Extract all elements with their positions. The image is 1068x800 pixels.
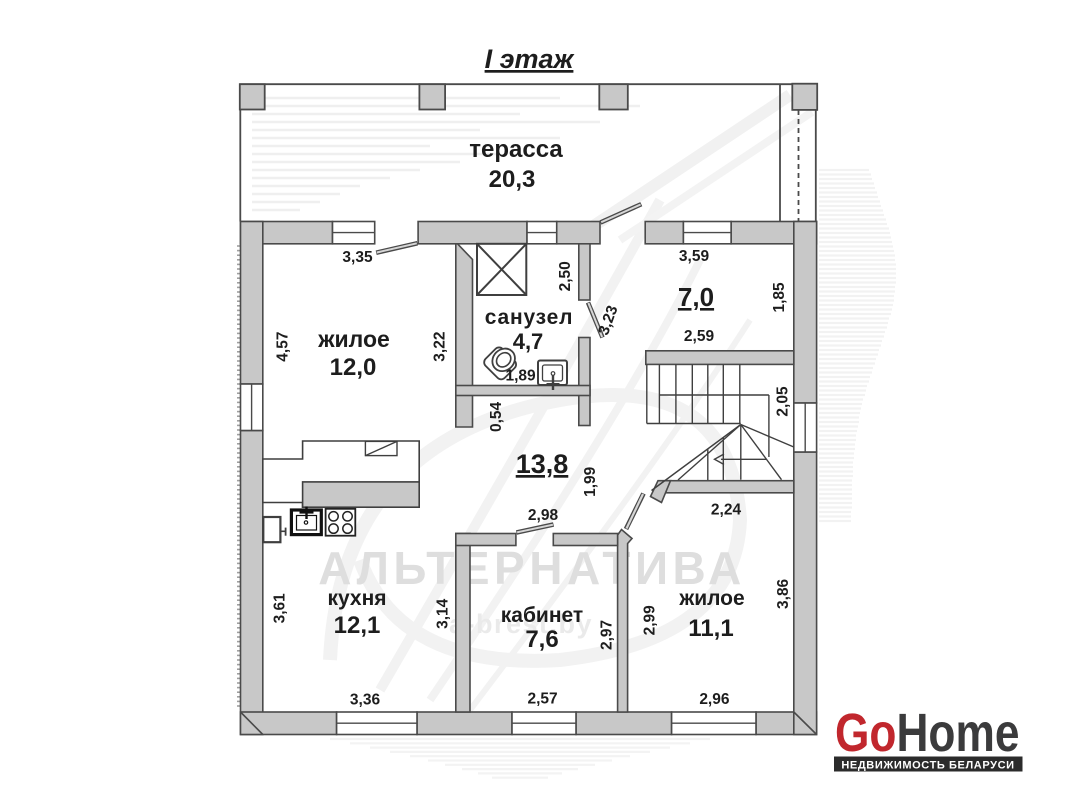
svg-text:7,0: 7,0 bbox=[678, 282, 714, 312]
svg-text:2,24: 2,24 bbox=[711, 502, 742, 519]
svg-text:4,7: 4,7 bbox=[513, 329, 544, 354]
svg-text:1,85: 1,85 bbox=[771, 282, 788, 313]
svg-text:3,22: 3,22 bbox=[432, 332, 449, 362]
svg-text:20,3: 20,3 bbox=[489, 166, 536, 193]
svg-text:2,97: 2,97 bbox=[599, 620, 616, 650]
svg-text:3,61: 3,61 bbox=[271, 593, 288, 624]
svg-text:3,35: 3,35 bbox=[342, 249, 373, 266]
svg-text:жилое: жилое bbox=[678, 587, 744, 610]
svg-text:НЕДВИЖИМОСТЬ БЕЛАРУСИ: НЕДВИЖИМОСТЬ БЕЛАРУСИ bbox=[841, 760, 1014, 772]
svg-text:1,89: 1,89 bbox=[506, 367, 537, 384]
svg-text:санузел: санузел bbox=[485, 306, 573, 329]
svg-text:7,6: 7,6 bbox=[525, 626, 558, 653]
svg-text:GoHome: GoHome bbox=[835, 703, 1019, 763]
svg-text:I этаж: I этаж bbox=[485, 44, 576, 74]
svg-text:терасса: терасса bbox=[469, 136, 563, 163]
svg-text:2,96: 2,96 bbox=[699, 691, 730, 708]
svg-text:кабинет: кабинет bbox=[501, 604, 583, 627]
svg-text:3,59: 3,59 bbox=[679, 248, 710, 265]
svg-text:4,57: 4,57 bbox=[274, 332, 291, 362]
svg-text:3,36: 3,36 bbox=[350, 692, 381, 709]
svg-text:0,54: 0,54 bbox=[488, 401, 505, 432]
svg-text:11,1: 11,1 bbox=[688, 615, 733, 642]
svg-text:3,14: 3,14 bbox=[434, 598, 451, 629]
svg-text:жилое: жилое bbox=[317, 326, 390, 352]
svg-text:1,99: 1,99 bbox=[582, 466, 599, 497]
svg-text:кухня: кухня bbox=[327, 587, 386, 610]
svg-text:2,59: 2,59 bbox=[684, 328, 715, 345]
svg-text:12,0: 12,0 bbox=[330, 354, 377, 381]
svg-text:13,8: 13,8 bbox=[516, 449, 569, 479]
svg-text:3,86: 3,86 bbox=[775, 578, 792, 609]
svg-text:2,57: 2,57 bbox=[528, 691, 558, 708]
svg-text:2,50: 2,50 bbox=[557, 261, 574, 291]
svg-text:12,1: 12,1 bbox=[334, 612, 381, 639]
svg-text:2,98: 2,98 bbox=[528, 507, 559, 524]
svg-text:2,05: 2,05 bbox=[775, 386, 792, 417]
svg-text:2,99: 2,99 bbox=[642, 605, 659, 636]
